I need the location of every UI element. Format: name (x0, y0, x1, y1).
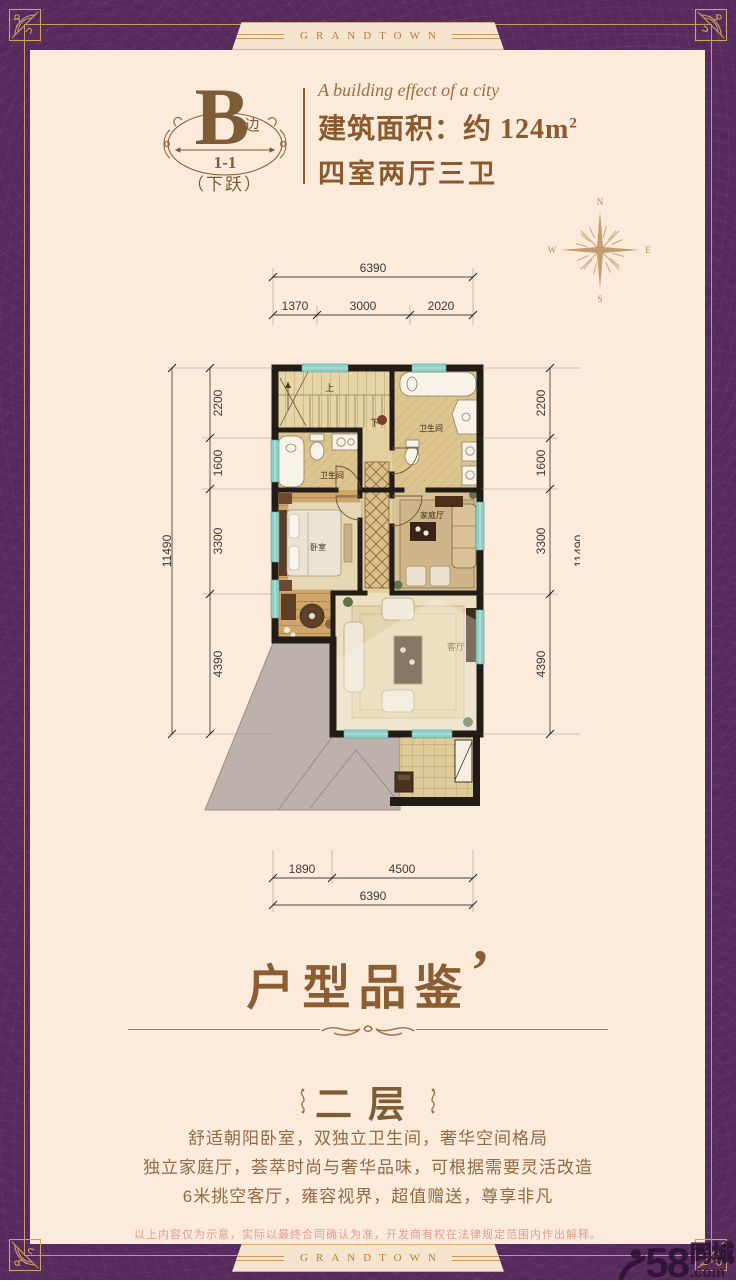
compass-n: N (597, 197, 604, 207)
brand-ribbon-bottom: GRANDTOWN (232, 1244, 504, 1272)
watermark-cn: 同城 (690, 1243, 734, 1265)
dim-top-seg2: 3000 (350, 299, 377, 313)
corner-ornament-icon (8, 1238, 42, 1272)
dim-bottom-seg2: 4500 (389, 862, 416, 876)
dim-left-seg2: 1600 (211, 449, 225, 476)
section-title-quote: ’ (470, 938, 489, 1003)
header-divider (303, 88, 305, 184)
brand-name: GRANDTOWN (292, 1252, 444, 1264)
family-furniture (394, 491, 478, 590)
dim-right-seg4: 4390 (534, 650, 548, 677)
unit-number: 1-1 (214, 153, 237, 172)
corner-ornament-icon (8, 8, 42, 42)
section-title-text: 户型品鉴 (246, 962, 470, 1015)
dim-right-seg1: 2200 (534, 389, 548, 416)
dim-left-seg3: 3300 (211, 527, 225, 554)
dim-bottom-seg1: 1890 (289, 862, 316, 876)
dim-top-total: 6390 (360, 261, 387, 275)
brand-name: GRANDTOWN (292, 30, 444, 42)
description-line-1: 舒适朝阳卧室，双独立卫生间，奢华空间格局 (0, 1124, 736, 1149)
divider-line (128, 1029, 320, 1030)
unit-note: （下跃） (187, 175, 263, 194)
ribbon-line (452, 1256, 504, 1261)
dim-left-total: 11490 (160, 534, 174, 567)
floor-label-flourish-icon (297, 1088, 309, 1114)
area-superscript: 2 (569, 116, 578, 132)
hall-runner (365, 462, 389, 588)
dim-right-seg3: 3300 (534, 527, 548, 554)
room-label-bedroom: 卧室 (310, 542, 326, 552)
ribbon-line (452, 34, 504, 39)
ribbon-line (232, 1256, 284, 1261)
unit-suffix: 边 (244, 117, 259, 134)
hall-plant (377, 415, 387, 425)
floor-label-flourish-icon (427, 1088, 439, 1114)
corner-ornament-icon (694, 8, 728, 42)
site-watermark: 58 同城 .com (619, 1243, 734, 1280)
floorplan: 上 下 卫生间 卫生间 (160, 250, 580, 930)
dim-left-seg4: 4390 (211, 650, 225, 677)
section-divider (128, 1020, 608, 1038)
area-text: 建筑面积：约 124m (318, 114, 569, 145)
brand-ribbon-top: GRANDTOWN (232, 22, 504, 50)
room-label-living: 客厅 (447, 641, 465, 652)
watermark-domain: .com (690, 1265, 725, 1280)
watermark-number: 58 (645, 1246, 688, 1280)
poster-background: GRANDTOWN GRANDTOWN B 边 1-1 （下跃） A build… (0, 0, 736, 1280)
stairs-up-label: 上 (325, 383, 334, 393)
divider-flourish-icon (320, 1020, 416, 1038)
watermark-logo-icon (619, 1246, 645, 1280)
compass-s: S (597, 294, 602, 304)
dim-right-seg2: 1600 (534, 449, 548, 476)
divider-line (416, 1029, 608, 1030)
tagline: A building effect of a city (318, 80, 648, 101)
description-line-2: 独立家庭厅，荟萃时尚与奢华品味，可根据需要灵活改造 (0, 1153, 736, 1178)
compass-e: E (645, 245, 651, 255)
section-title: 户型品鉴’ (0, 948, 736, 1018)
dim-left-seg1: 2200 (211, 389, 225, 416)
dim-right-total: 11490 (572, 534, 580, 567)
header-info: A building effect of a city 建筑面积：约 124m2… (318, 80, 648, 191)
unit-letter: B (195, 71, 250, 162)
area-line: 建筑面积：约 124m2 (318, 107, 648, 147)
description-line-3: 6米挑空客厅，雍容视界，超值赠送，尊享非凡 (0, 1182, 736, 1207)
ribbon-line (232, 34, 284, 39)
dim-top-seg1: 1370 (282, 299, 309, 313)
floor-label: 二层 (0, 1074, 736, 1128)
disclaimer-text: 以上内容仅为示意，实际以最终合同确认为准，开发商有权在法律规定范围内作出解释。 (0, 1226, 736, 1242)
room-label-family: 家庭厅 (420, 510, 444, 520)
living-furniture (333, 597, 480, 734)
unit-badge: B 边 1-1 （下跃） (160, 60, 300, 194)
layout-line: 四室两厅三卫 (318, 152, 648, 191)
floor-label-text: 二层 (315, 1074, 421, 1128)
room-label-bath-right: 卫生间 (419, 423, 443, 433)
dim-top-seg3: 2020 (428, 299, 455, 313)
dim-bottom-total: 6390 (360, 889, 387, 903)
room-label-bath-left: 卫生间 (320, 470, 344, 480)
